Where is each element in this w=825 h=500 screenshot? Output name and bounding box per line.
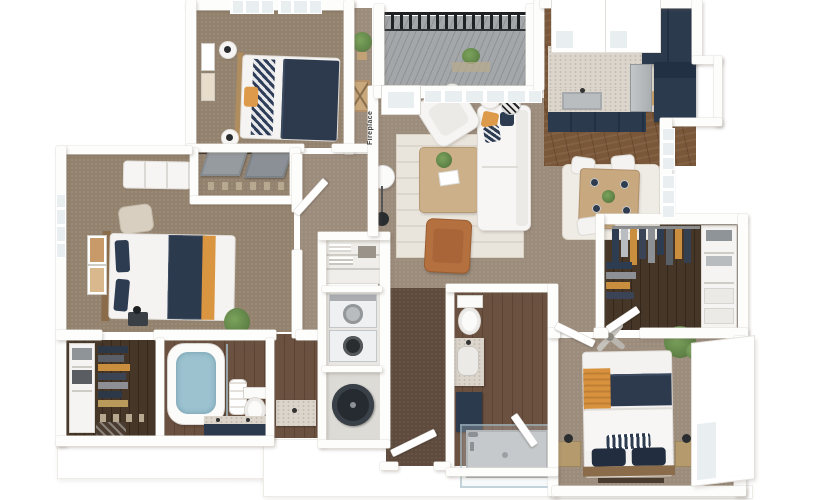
shelf-line bbox=[72, 366, 92, 368]
wall bbox=[56, 146, 66, 446]
bathroom2-toilet bbox=[458, 296, 482, 334]
bedroom1-window bbox=[230, 0, 274, 14]
toilet-tank bbox=[244, 388, 266, 398]
clothes-item bbox=[98, 373, 126, 380]
dining-tall-window bbox=[662, 128, 675, 170]
linen-towels bbox=[329, 257, 353, 265]
kitchen-peninsula-top bbox=[654, 62, 696, 78]
bedroom1-wall-art-2 bbox=[202, 74, 214, 100]
bedroom3-nightstand-left bbox=[558, 442, 580, 466]
wall bbox=[56, 146, 192, 154]
dining-centerpiece bbox=[602, 190, 615, 203]
closet2-shelf-unit bbox=[70, 344, 94, 432]
bed-navy-duvet bbox=[281, 59, 340, 141]
clothes-item bbox=[98, 346, 128, 353]
vanity-sink bbox=[457, 346, 479, 376]
clothes-item bbox=[98, 382, 128, 389]
bedroom3-window bbox=[692, 336, 754, 486]
bedroom2-nightstand bbox=[128, 312, 148, 326]
clothes-item bbox=[666, 229, 673, 265]
wall bbox=[692, 0, 702, 62]
nook-plant bbox=[352, 32, 372, 52]
laundry-closet bbox=[324, 290, 382, 366]
kitchen-faucet bbox=[580, 88, 585, 93]
coffee-table-plant bbox=[436, 152, 452, 168]
drawer bbox=[704, 288, 734, 304]
clothes-item bbox=[657, 229, 664, 255]
wall bbox=[322, 286, 382, 292]
shelf-line bbox=[326, 268, 380, 270]
vanity-faucet bbox=[466, 340, 471, 345]
wall bbox=[190, 148, 198, 202]
bedroom2-bed bbox=[101, 231, 235, 323]
toilet-bowl bbox=[459, 308, 480, 334]
wall bbox=[594, 328, 608, 338]
storage-basket bbox=[72, 370, 92, 384]
toilet-tank bbox=[458, 296, 482, 307]
wall bbox=[640, 328, 748, 338]
balcony-railing bbox=[382, 12, 530, 31]
dining-plate bbox=[590, 178, 599, 187]
bed-orange-throw bbox=[201, 236, 215, 320]
bedroom2-window bbox=[56, 194, 66, 258]
leather-accent-chair bbox=[425, 219, 472, 273]
bedroom1-lamp-bottom bbox=[226, 134, 233, 141]
dining-plate bbox=[592, 204, 601, 213]
bedroom2-armchair bbox=[118, 204, 153, 234]
clothes-item bbox=[639, 229, 646, 259]
bed-foot-bench bbox=[598, 478, 664, 483]
bedroom1-window-2 bbox=[278, 0, 322, 14]
kitchen-stainless-appliance bbox=[630, 64, 652, 112]
closet1-door-left bbox=[200, 150, 248, 176]
bedroom2-wall-art bbox=[90, 238, 104, 262]
arc-lamp-stem bbox=[381, 186, 383, 214]
wall bbox=[446, 284, 556, 292]
closet2-shoes bbox=[100, 414, 144, 422]
bedroom1-bed bbox=[234, 52, 339, 144]
closet1-shoes bbox=[208, 182, 284, 190]
dining-plate bbox=[620, 180, 629, 189]
nook-vanity bbox=[276, 400, 316, 426]
dining-tall-window-2 bbox=[662, 174, 675, 218]
wall bbox=[318, 232, 326, 446]
bedroom3-bed bbox=[583, 351, 673, 477]
clothes-item bbox=[621, 229, 628, 257]
shower-control bbox=[470, 442, 474, 451]
linen-closet bbox=[324, 240, 382, 284]
balcony-mat bbox=[452, 62, 490, 72]
wall bbox=[186, 0, 196, 154]
bedroom1-wall-art bbox=[202, 44, 214, 70]
sofa-seat-seam bbox=[482, 166, 518, 168]
clothes-item bbox=[98, 364, 130, 371]
wall bbox=[552, 486, 746, 496]
wall bbox=[548, 284, 558, 496]
vanity-faucet bbox=[246, 418, 250, 422]
water-heater-pipe bbox=[350, 402, 356, 408]
storage-basket bbox=[72, 348, 92, 360]
wall bbox=[318, 440, 390, 448]
wall bbox=[374, 4, 384, 92]
bed-pillow-navy bbox=[113, 279, 130, 312]
wall bbox=[380, 462, 398, 470]
wall bbox=[292, 250, 302, 338]
shelf-line bbox=[704, 252, 734, 254]
wall bbox=[738, 214, 748, 340]
clothes-item bbox=[98, 355, 124, 362]
kitchen-window-2 bbox=[606, 0, 660, 52]
closet2-ottoman bbox=[96, 422, 126, 436]
wall bbox=[322, 366, 382, 372]
linen-basket bbox=[358, 246, 376, 258]
bed-pillow-navy bbox=[592, 448, 626, 467]
drawer bbox=[704, 308, 734, 324]
bed-pillow-navy bbox=[115, 240, 131, 273]
wall bbox=[318, 232, 390, 240]
clothes-item bbox=[648, 229, 655, 263]
fireplace-label: Fireplace bbox=[367, 100, 378, 156]
wall-sconce-left bbox=[564, 434, 573, 443]
nook-plant-stand bbox=[357, 52, 367, 60]
bedroom2-wall-art-2 bbox=[90, 268, 104, 292]
dryer bbox=[329, 294, 377, 328]
clothes-item bbox=[684, 229, 691, 263]
shelf-line bbox=[72, 390, 92, 392]
bathroom2-vanity bbox=[452, 338, 484, 386]
living-french-door bbox=[382, 86, 420, 114]
wall bbox=[332, 144, 372, 152]
clothes-item bbox=[630, 229, 637, 265]
shower-drain bbox=[502, 452, 508, 458]
bed-navy-runner bbox=[167, 235, 204, 320]
kitchen-window bbox=[552, 0, 606, 52]
wall bbox=[534, 0, 544, 90]
clothes-item bbox=[606, 282, 630, 289]
sofa-pillow-navy-2 bbox=[500, 112, 514, 126]
shelf-line bbox=[704, 282, 734, 284]
wall bbox=[154, 330, 276, 340]
dryer-door bbox=[343, 304, 363, 324]
clothes-item bbox=[98, 400, 128, 407]
wall bbox=[380, 232, 390, 446]
shower-head bbox=[468, 432, 478, 437]
washer-door bbox=[343, 336, 363, 356]
sofa-back-cushions bbox=[516, 110, 528, 226]
clothes-item bbox=[98, 391, 122, 398]
wall bbox=[344, 0, 354, 154]
clothes-item bbox=[606, 272, 636, 279]
bed-pillow-navy bbox=[632, 447, 666, 466]
wall bbox=[446, 468, 558, 476]
wall bbox=[56, 436, 274, 446]
floor-plan: Fireplace bbox=[0, 0, 825, 500]
wall bbox=[714, 56, 722, 126]
clothes-item bbox=[675, 229, 682, 259]
bathroom1-vanity-top bbox=[204, 416, 266, 424]
storage-bin bbox=[706, 256, 732, 266]
bed-orange-pillow bbox=[244, 87, 259, 107]
wall bbox=[186, 144, 304, 152]
wall bbox=[596, 214, 604, 336]
storage-bin bbox=[706, 230, 732, 241]
hallway-floor-lower bbox=[300, 236, 320, 336]
coffee-table-book bbox=[439, 171, 458, 185]
tub-glass-panel bbox=[226, 344, 228, 422]
sofa-pillow-navy bbox=[483, 125, 502, 144]
wall bbox=[156, 338, 164, 440]
clothes-item bbox=[612, 229, 619, 263]
bathtub-water bbox=[176, 352, 216, 414]
closet1-door-right bbox=[244, 152, 292, 178]
kitchen-lower-cabinets bbox=[548, 112, 646, 132]
wall-sconce-right bbox=[682, 434, 691, 443]
clothes-item bbox=[606, 262, 632, 269]
bedroom2-lamp bbox=[133, 306, 141, 314]
nook-vanity-faucet bbox=[292, 408, 297, 413]
sofa bbox=[478, 106, 530, 230]
leather-chair-seat bbox=[432, 228, 464, 264]
closet1-shelf-unit bbox=[702, 226, 736, 328]
bedroom1-lamp-top bbox=[224, 46, 231, 53]
closet2-clothes bbox=[98, 346, 132, 410]
wall bbox=[190, 196, 300, 204]
wall bbox=[56, 330, 102, 340]
wall bbox=[446, 284, 454, 474]
bedroom2-dresser bbox=[124, 161, 190, 188]
bed-orange-throw bbox=[583, 368, 611, 410]
linen-towels bbox=[329, 244, 351, 252]
living-windows bbox=[424, 90, 542, 103]
water-heater-closet bbox=[324, 372, 382, 440]
vanity-faucet bbox=[216, 418, 220, 422]
clothes-item bbox=[606, 292, 634, 299]
bed-headboard bbox=[583, 465, 675, 477]
wall bbox=[266, 338, 274, 440]
kitchen-sink bbox=[562, 92, 602, 110]
closet1-side-clothes bbox=[606, 262, 638, 310]
washer bbox=[329, 330, 377, 362]
